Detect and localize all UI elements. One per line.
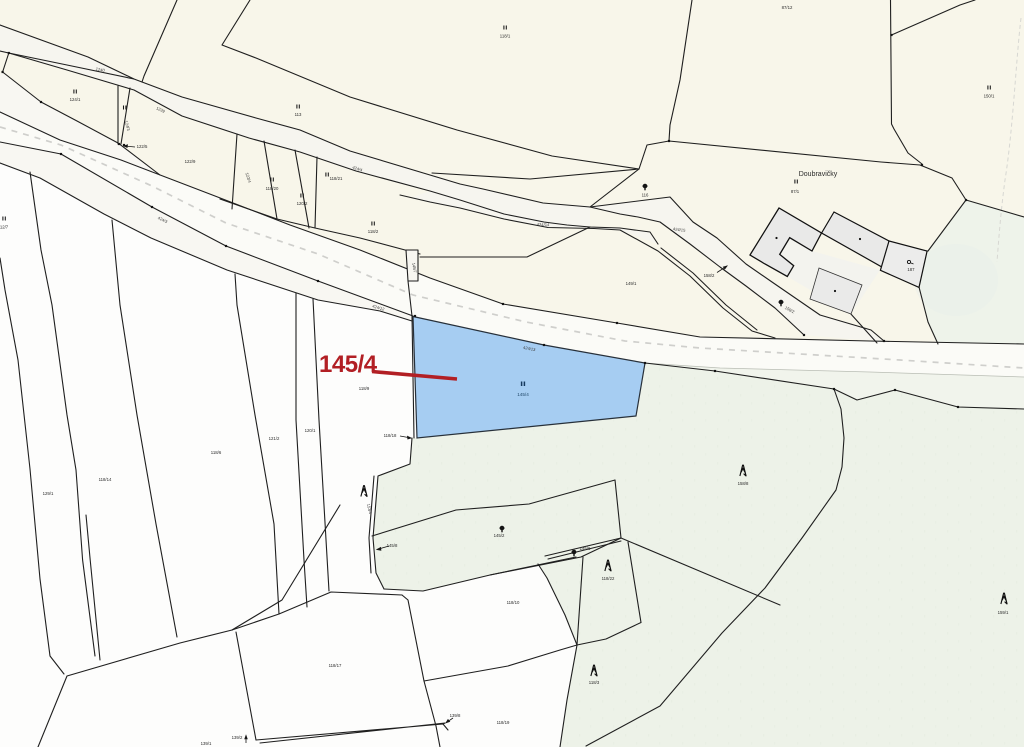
svg-text:118/14: 118/14 xyxy=(99,477,112,482)
svg-text:87/12: 87/12 xyxy=(782,5,793,10)
svg-text:113: 113 xyxy=(295,112,302,117)
svg-text:122/9: 122/9 xyxy=(185,159,196,164)
svg-text:118/20: 118/20 xyxy=(266,186,279,191)
svg-text:159/1: 159/1 xyxy=(998,610,1009,615)
svg-text:121/2: 121/2 xyxy=(269,436,280,441)
svg-text:87/1: 87/1 xyxy=(791,189,800,194)
svg-text:118/9: 118/9 xyxy=(359,386,370,391)
svg-text:118/6: 118/6 xyxy=(211,450,222,455)
svg-text:139/2: 139/2 xyxy=(232,735,243,740)
svg-text:118/19: 118/19 xyxy=(497,720,510,725)
svg-text:116: 116 xyxy=(642,193,649,198)
svg-text:118/2: 118/2 xyxy=(368,229,379,234)
svg-text:120/2: 120/2 xyxy=(297,201,308,206)
svg-text:118/21: 118/21 xyxy=(330,176,343,181)
svg-text:120/1: 120/1 xyxy=(305,428,316,433)
svg-text:118/17: 118/17 xyxy=(329,663,342,668)
svg-text:Doubravičky: Doubravičky xyxy=(799,171,838,178)
svg-text:158/8: 158/8 xyxy=(738,481,749,486)
svg-text:145/2: 145/2 xyxy=(494,533,505,538)
svg-text:424/14: 424/14 xyxy=(537,222,550,227)
svg-text:118/3: 118/3 xyxy=(589,680,600,685)
svg-text:145/4: 145/4 xyxy=(517,392,529,397)
svg-text:158/2: 158/2 xyxy=(704,273,715,278)
svg-text:150/1: 150/1 xyxy=(984,94,995,99)
svg-text:124/1: 124/1 xyxy=(70,97,81,102)
svg-text:122/5: 122/5 xyxy=(137,144,148,149)
svg-text:145/4: 145/4 xyxy=(319,351,378,378)
svg-text:187: 187 xyxy=(907,267,915,272)
svg-text:149/1: 149/1 xyxy=(626,281,637,286)
svg-text:129/1: 129/1 xyxy=(43,491,54,496)
svg-text:118/1: 118/1 xyxy=(500,34,511,39)
svg-text:139/1: 139/1 xyxy=(201,741,212,746)
svg-text:118/22: 118/22 xyxy=(602,576,615,581)
svg-text:12/7: 12/7 xyxy=(0,225,9,230)
svg-text:145/6: 145/6 xyxy=(580,546,591,551)
svg-text:118/18: 118/18 xyxy=(384,433,397,438)
svg-text:145/8: 145/8 xyxy=(387,543,398,548)
svg-text:139/8: 139/8 xyxy=(450,713,461,718)
svg-text:118/10: 118/10 xyxy=(507,600,520,605)
